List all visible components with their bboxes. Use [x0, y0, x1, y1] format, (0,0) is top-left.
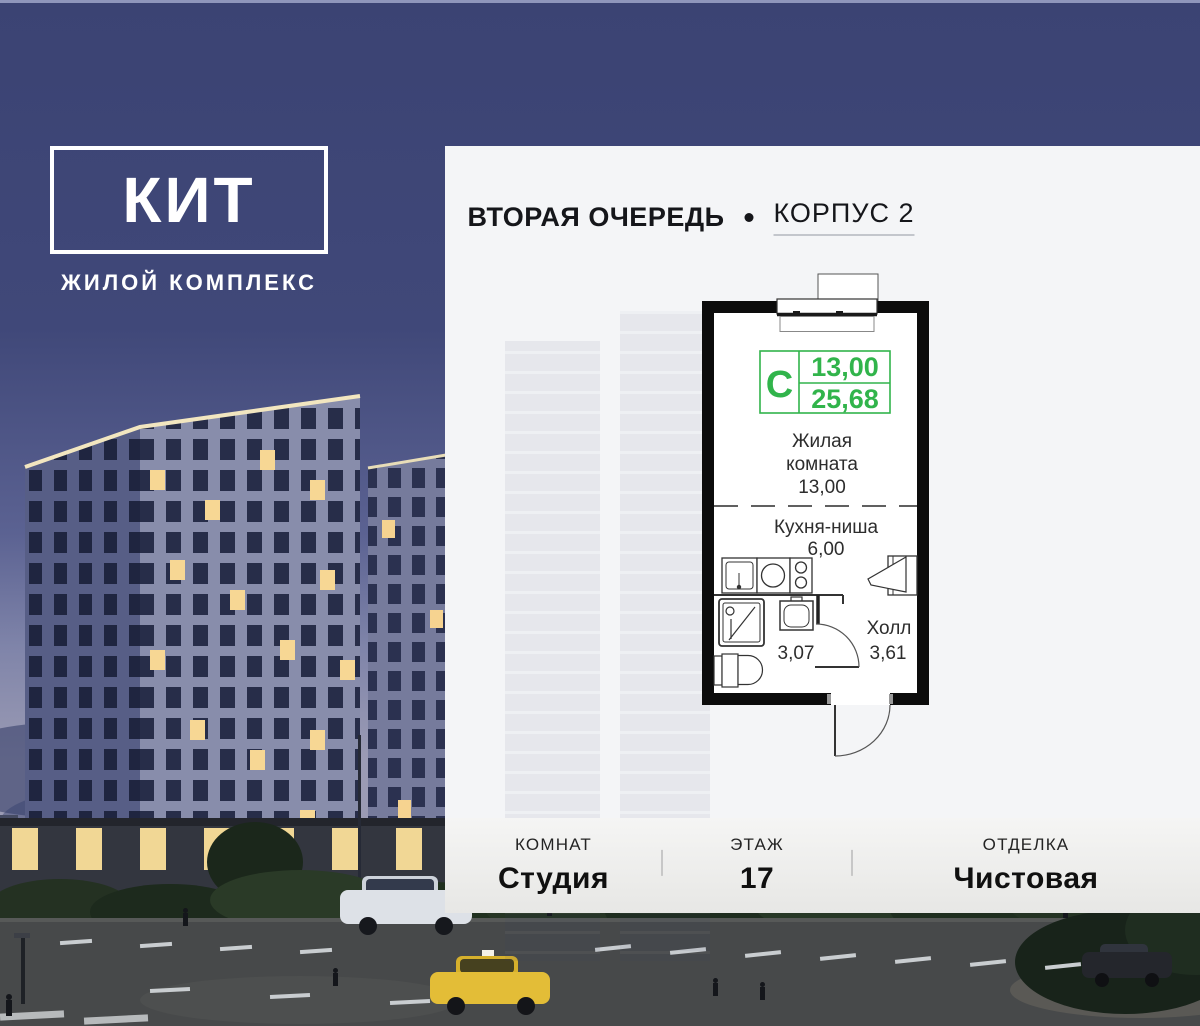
stove-icon [757, 558, 812, 593]
type-letter: С [766, 364, 793, 406]
phase-title: ВТОРАЯ ОЧЕРЕДЬ [468, 202, 725, 233]
toilet-icon [714, 654, 763, 687]
total-area-value: 25,68 [811, 384, 879, 414]
window-icon [777, 299, 877, 332]
logo-subtitle: ЖИЛОЙ КОМПЛЕКС [50, 270, 328, 296]
living-room-area: 13,00 [798, 477, 846, 498]
living-room-label-1: Жилая [792, 431, 852, 452]
logo-title: КИТ [122, 168, 255, 232]
rooms-label: КОМНАТ [515, 835, 592, 855]
kitchen-label: Кухня-ниша [774, 517, 879, 538]
floor-label: ЭТАЖ [730, 835, 784, 855]
finish-value: Чистовая [953, 862, 1098, 896]
flat-card-panel: ВТОРАЯ ОЧЕРЕДЬ КОРПУС 2 [445, 146, 1200, 913]
separator-dot-icon [744, 213, 753, 222]
logo-box: КИТ [50, 146, 328, 254]
rooms-value: Студия [498, 862, 609, 896]
washbasin-icon [780, 597, 813, 630]
floor-plan: С 13,00 25,68 Жилая комната 13,00 Кухня-… [695, 268, 945, 763]
kitchen-area: 6,00 [808, 539, 845, 560]
floor-value: 17 [740, 862, 774, 896]
hall-area: 3,61 [870, 643, 907, 664]
hall-label: Холл [867, 618, 912, 639]
flat-type-badge: С 13,00 25,68 [760, 351, 890, 414]
living-area-value: 13,00 [811, 352, 879, 382]
bathroom-area: 3,07 [778, 643, 815, 664]
panel-header: ВТОРАЯ ОЧЕРЕДЬ КОРПУС 2 [468, 198, 915, 236]
shower-icon [719, 599, 764, 646]
logo: КИТ ЖИЛОЙ КОМПЛЕКС [50, 146, 328, 296]
flat-info-bar: КОМНАТ Студия ЭТАЖ 17 ОТДЕЛКА Чистовая [445, 818, 1200, 913]
living-room-label-2: комната [786, 454, 858, 475]
footer-col-rooms: КОМНАТ Студия [445, 818, 662, 913]
korpus-link[interactable]: КОРПУС 2 [773, 198, 914, 236]
finish-label: ОТДЕЛКА [983, 835, 1070, 855]
kitchen-sink-icon [722, 558, 757, 593]
footer-col-finish: ОТДЕЛКА Чистовая [852, 818, 1200, 913]
footer-col-floor: ЭТАЖ 17 [662, 818, 852, 913]
